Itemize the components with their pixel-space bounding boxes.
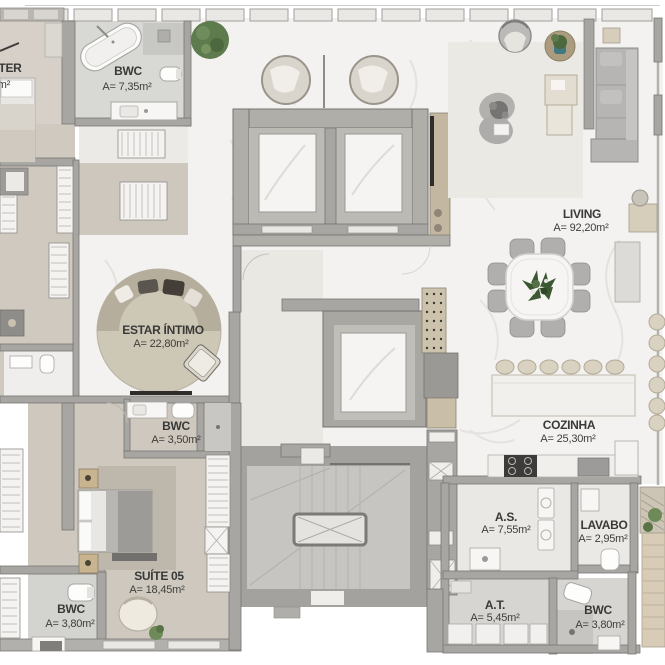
svg-text:A.S.: A.S. (495, 510, 517, 524)
svg-text:A= 92,20m²: A= 92,20m² (553, 222, 609, 234)
svg-text:A= 3,50m²: A= 3,50m² (151, 434, 201, 446)
svg-text:BWC: BWC (114, 64, 142, 78)
svg-text:SUÍTE 05: SUÍTE 05 (134, 568, 184, 583)
svg-text:A= 18,45m²: A= 18,45m² (129, 584, 185, 596)
svg-text:A= 3,80m²: A= 3,80m² (45, 618, 95, 630)
svg-text:A= 5,45m²: A= 5,45m² (470, 612, 520, 624)
svg-text:A= 7,55m²: A= 7,55m² (481, 524, 531, 536)
svg-text:BWC: BWC (584, 603, 612, 617)
svg-text:A= 2,95m²: A= 2,95m² (578, 533, 628, 545)
svg-text:LIVING: LIVING (563, 207, 601, 221)
svg-text:ESTAR ÍNTIMO: ESTAR ÍNTIMO (122, 322, 204, 337)
svg-text:A.T.: A.T. (485, 598, 505, 612)
svg-text:BWC: BWC (162, 419, 190, 433)
svg-text:TER: TER (0, 61, 22, 75)
svg-text:COZINHA: COZINHA (543, 418, 596, 432)
svg-text:LAVABO: LAVABO (580, 518, 627, 532)
svg-text:A= 3,80m²: A= 3,80m² (575, 619, 625, 631)
svg-text:A= 25,30m²: A= 25,30m² (540, 433, 596, 445)
svg-text:A= 7,35m²: A= 7,35m² (102, 81, 152, 93)
svg-text:BWC: BWC (57, 602, 85, 616)
svg-text:A= 22,80m²: A= 22,80m² (133, 338, 189, 350)
svg-text:m²: m² (0, 79, 11, 91)
